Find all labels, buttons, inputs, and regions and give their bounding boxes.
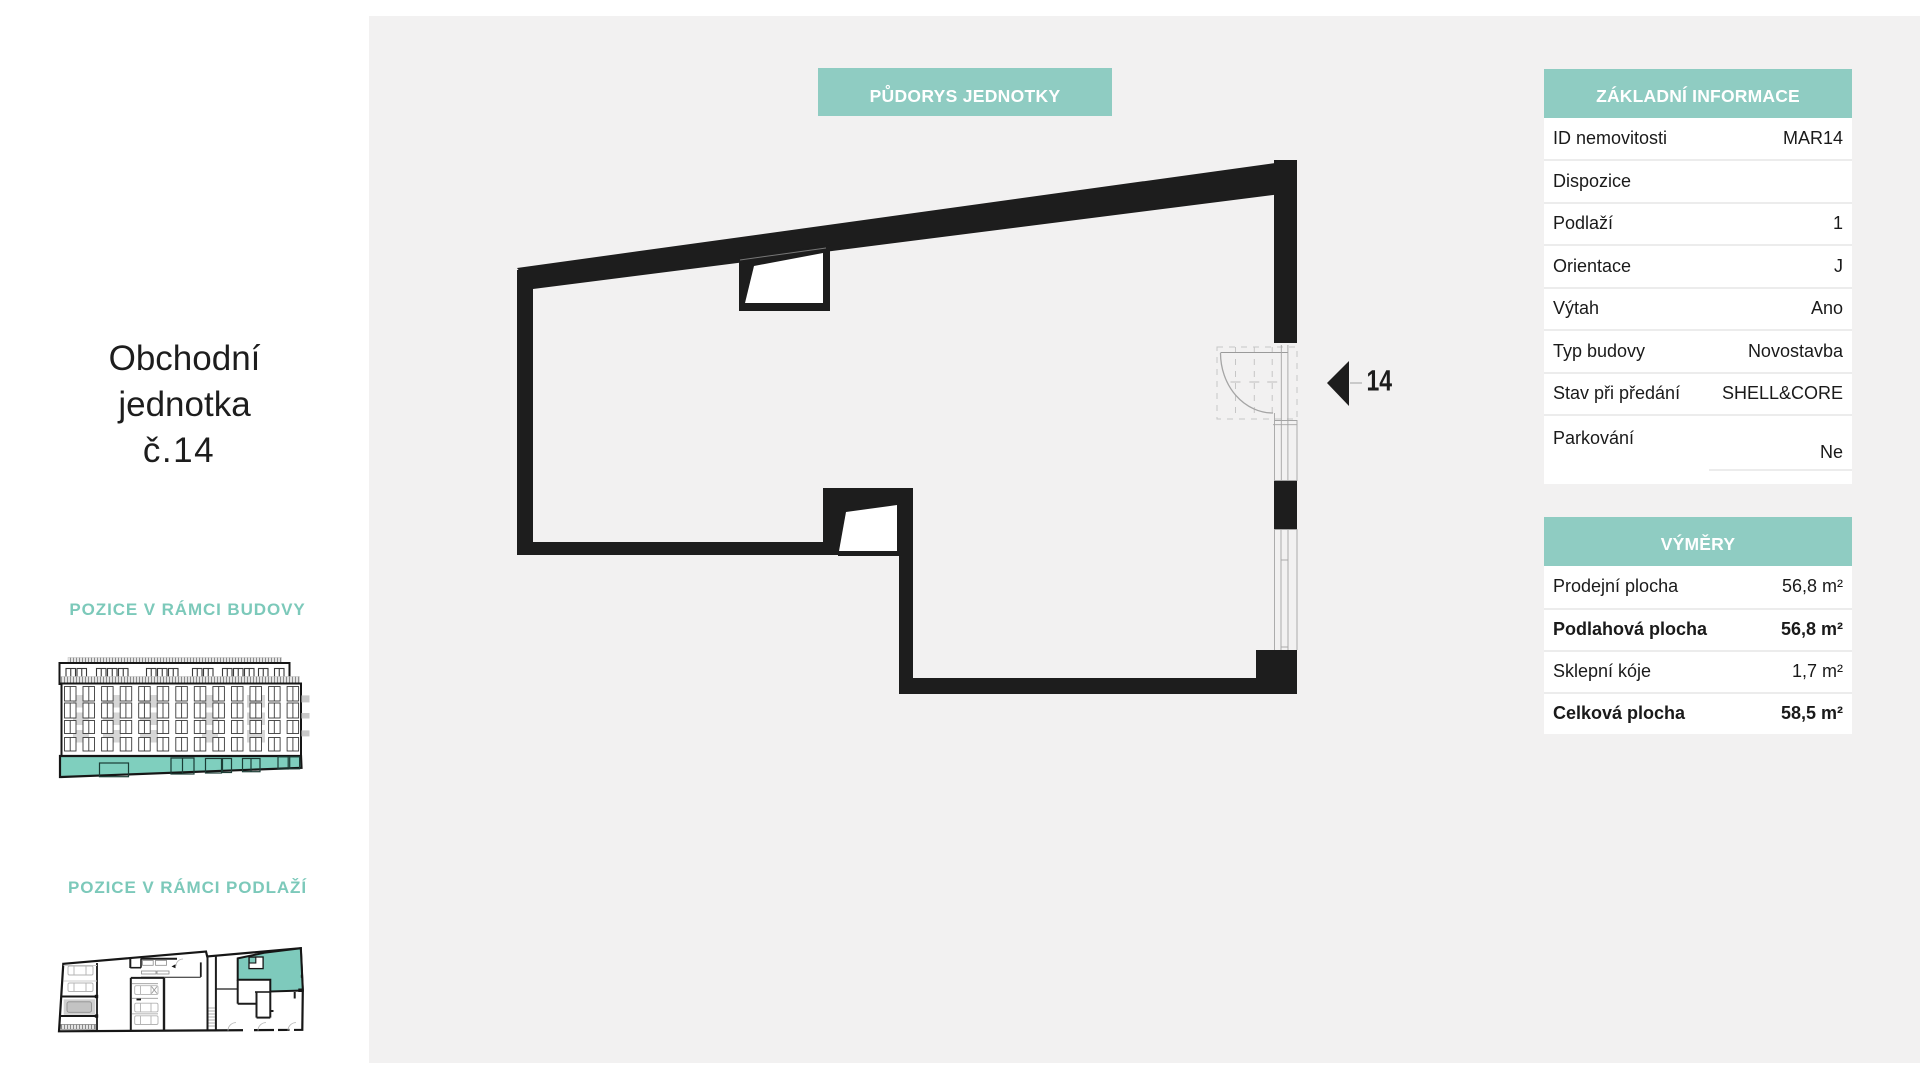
- svg-text:14: 14: [1367, 365, 1393, 398]
